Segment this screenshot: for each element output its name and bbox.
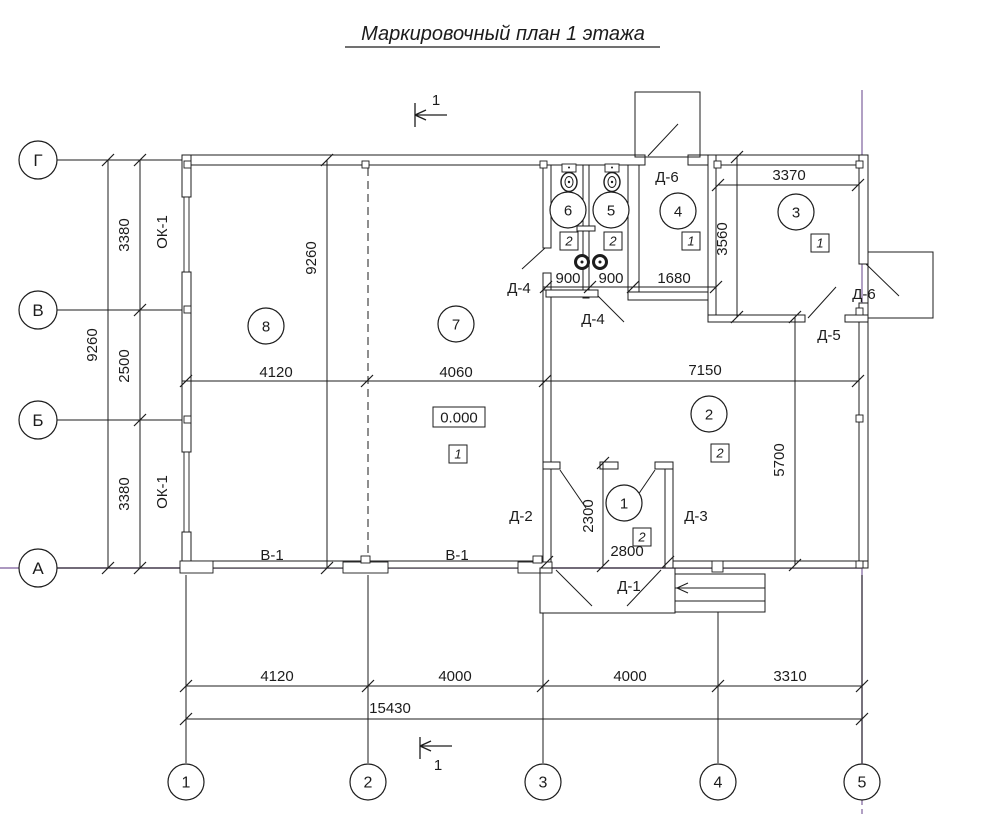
fixture-dot [581,261,584,264]
floor-type-marker-label: 2 [608,234,617,249]
tag-label-ОК-1: ОК-1 [154,215,171,249]
wall [182,272,191,452]
tag-label-Д-6: Д-6 [852,286,876,303]
tag-label-Д-6: Д-6 [655,169,679,186]
section-mark [415,110,426,115]
structure-outline [868,252,933,318]
window-or-pier [361,556,370,563]
fixture-dot [611,181,613,183]
window-or-pier [184,306,191,313]
door-leaf [556,570,592,606]
dim-label-2300: 2300 [580,499,597,532]
dim-label-4120: 4120 [259,364,292,381]
wall [628,165,639,292]
dim-label-4060: 4060 [439,364,472,381]
dim-label-9260: 9260 [84,328,101,361]
window-or-pier [362,161,369,168]
dim-label-7150: 7150 [688,362,721,379]
window-or-pier [184,452,189,532]
axis-bubble-label-4: 4 [714,775,723,792]
axis-bubble-label-3: 3 [539,775,548,792]
section-label-1: 1 [432,92,440,109]
dim-label-3370: 3370 [772,167,805,184]
tag-label-Д-4: Д-4 [581,311,605,328]
dim-label-2500: 2500 [116,349,133,382]
fixture-dot [611,167,613,169]
tag-label-Д-4: Д-4 [507,280,531,297]
door-leaf [522,248,545,269]
section-label-1: 1 [434,757,442,774]
axis-bubble-label-Б: Б [32,411,43,430]
dim-label-15430: 15430 [369,700,411,717]
wall [543,462,560,469]
section-mark [415,115,426,120]
room-bubble-label-5: 5 [607,202,615,219]
dim-label-4000: 4000 [438,668,471,685]
wall [543,290,551,568]
wall [859,155,868,264]
level-mark-label: 0.000 [440,409,478,426]
tag-label-В-1: В-1 [445,547,468,564]
wall [628,292,716,300]
section-mark [420,741,431,746]
tag-label-Д-3: Д-3 [684,508,708,525]
dim-label-1680: 1680 [657,270,690,287]
window-or-pier [184,197,189,272]
tag-label-Д-5: Д-5 [817,327,841,344]
axis-bubble-label-А: А [32,559,44,578]
fixture-dot [568,181,570,183]
window-or-pier [180,561,213,573]
section-mark [420,746,431,751]
window-or-pier [540,161,547,168]
room-bubble-label-7: 7 [452,316,460,333]
dim-label-900: 900 [555,270,580,287]
axis-bubble-label-1: 1 [182,775,191,792]
window-or-pier [856,415,863,422]
structure-outline [675,574,765,612]
axis-bubble-label-5: 5 [858,775,867,792]
wall [845,315,868,322]
fixture-dot [568,167,570,169]
step-line [677,588,688,593]
axis-bubble-label-2: 2 [364,775,373,792]
floor-plan-sheet: ГВБА123458765432112211220.00092603380250… [0,0,988,817]
axis-bubble-label-Г: Г [33,151,42,170]
window-or-pier [714,161,721,168]
room-bubble-label-3: 3 [792,204,800,221]
structure-outline [635,92,700,157]
room-bubble-label-2: 2 [705,406,713,423]
wall [182,155,645,165]
tag-label-В-1: В-1 [260,547,283,564]
dim-label-3310: 3310 [773,668,806,685]
dim-label-5700: 5700 [771,443,788,476]
tag-label-ОК-1: ОК-1 [154,475,171,509]
window-or-pier [712,561,723,572]
tag-label-Д-2: Д-2 [509,508,533,525]
window-or-pier [343,562,388,573]
window-or-pier [856,161,863,168]
floor-type-marker-label: 2 [564,234,573,249]
wall [859,303,868,568]
room-bubble-label-1: 1 [620,495,628,512]
dim-label-4000: 4000 [613,668,646,685]
floor-type-marker-label: 1 [816,236,823,251]
tag-label-Д-1: Д-1 [617,578,641,595]
dim-label-2800: 2800 [610,543,643,560]
window-or-pier [856,308,863,315]
dim-label-3380: 3380 [116,477,133,510]
door-leaf [808,287,836,318]
dim-label-900: 900 [598,270,623,287]
fixture-dot [599,261,602,264]
window-or-pier [533,556,542,563]
floor-type-marker-label: 1 [454,447,461,462]
wall [665,462,673,568]
step-line [677,583,688,588]
door-leaf [648,124,678,156]
window-or-pier [184,416,191,423]
dim-label-3380: 3380 [116,218,133,251]
floor-plan: ГВБА123458765432112211220.00092603380250… [0,0,988,817]
floor-type-marker-label: 1 [687,234,694,249]
dim-label-3560: 3560 [714,222,731,255]
floor-type-marker-label: 2 [715,446,724,461]
room-bubble-label-6: 6 [564,202,572,219]
wall [665,561,868,568]
dim-label-4120: 4120 [260,668,293,685]
wall [546,290,598,297]
drawing-title: Маркировочный план 1 этажа [361,23,645,45]
wall [655,462,673,469]
dim-label-9260: 9260 [303,241,320,274]
window-or-pier [856,561,863,568]
wall [577,226,595,231]
axis-bubble-label-В: В [32,301,43,320]
room-bubble-label-4: 4 [674,203,682,220]
window-or-pier [184,161,191,168]
room-bubble-label-8: 8 [262,318,270,335]
